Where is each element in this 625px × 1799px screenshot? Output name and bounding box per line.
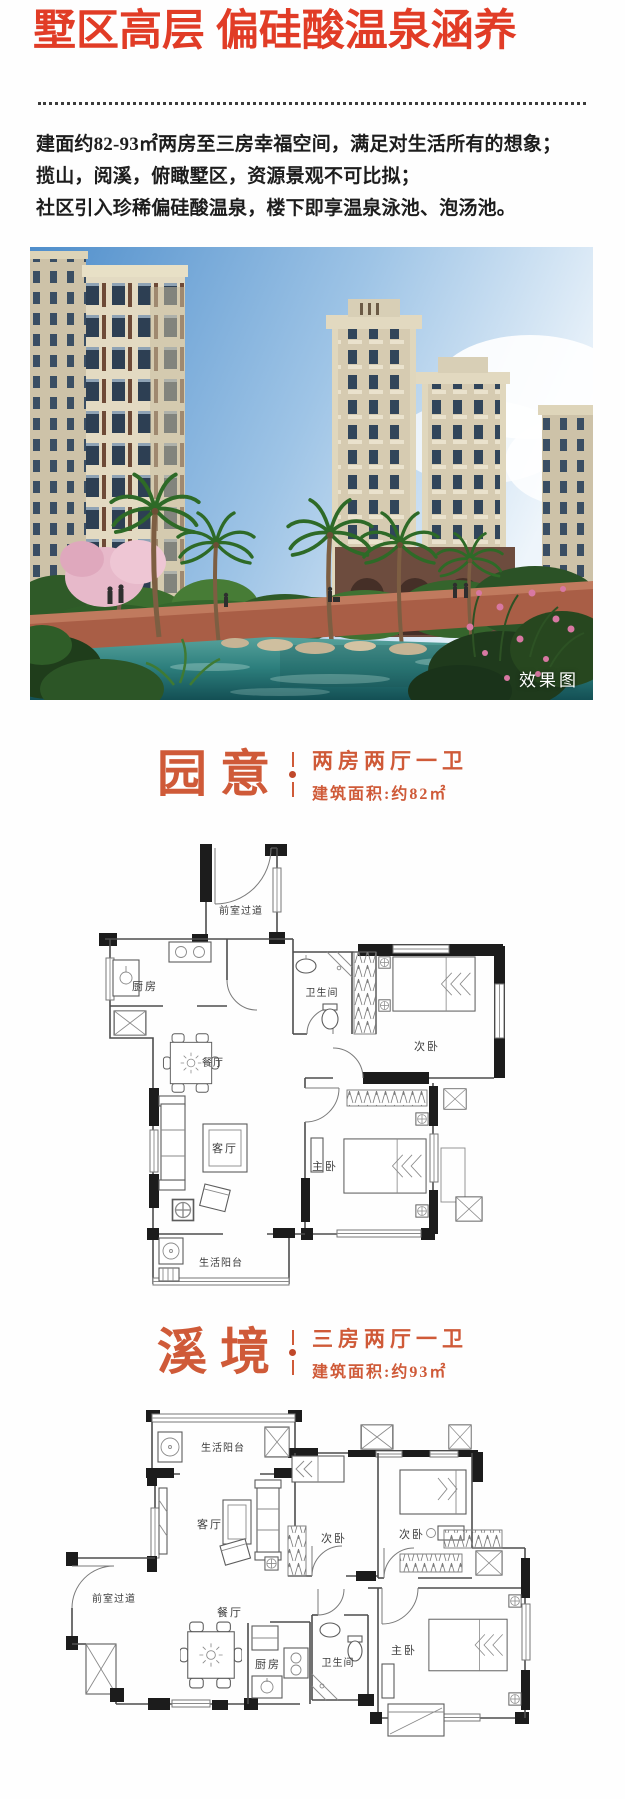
room-label-balcony: 生活阳台	[201, 1441, 245, 1454]
toilet-icon	[322, 1004, 338, 1029]
plan1-walls	[99, 844, 505, 1285]
bath-sink-icon	[296, 955, 316, 973]
room-label-master: 主卧	[312, 1160, 338, 1173]
room-label-kitchen: 厨房	[132, 980, 158, 993]
dotted-divider	[38, 102, 586, 105]
bed-icon	[292, 1456, 344, 1482]
floorplan-xijing: 生活阳台 客厅 次卧 次卧 前室过道 餐厅 厨房 卫生间 主卧	[60, 1408, 560, 1745]
room-label-living: 客厅	[212, 1141, 238, 1155]
plan1-divider	[289, 752, 296, 797]
bed-icon	[400, 1470, 466, 1514]
dining-table-icon	[180, 1622, 242, 1688]
plan1-specs: 两房两厅一卫 建筑面积:约82㎡	[312, 745, 468, 804]
room-label-dining: 餐厅	[217, 1605, 243, 1619]
wardrobe-icon	[400, 1554, 462, 1572]
plan2-layout: 三房两厅一卫	[312, 1323, 468, 1353]
intro-paragraphs: 建面约82-93㎡两房至三房幸福空间，满足对生活所有的想象； 揽山，阅溪，俯瞰墅…	[36, 129, 596, 225]
washer-icon	[159, 1238, 183, 1264]
armchair-icon	[200, 1184, 231, 1212]
plan2-specs: 三房两厅一卫 建筑面积:约93㎡	[312, 1323, 468, 1382]
intro-line-3: 社区引入珍稀偏硅酸温泉，楼下即享温泉泳池、泡汤池。	[36, 193, 596, 225]
watermark-label: 效果图	[519, 666, 579, 691]
room-label-kitchen: 厨房	[255, 1658, 281, 1671]
bath-sink-icon	[320, 1623, 340, 1637]
cabinet-icon	[159, 1268, 179, 1281]
plan2-name: 溪境	[157, 1327, 283, 1377]
room-label-corridor: 前室过道	[92, 1592, 136, 1605]
coffee-table-icon	[223, 1500, 251, 1544]
article-page: 墅区高层 偏硅酸温泉涵养 建面约82-93㎡两房至三房幸福空间，满足对生活所有的…	[0, 0, 625, 1799]
sofa-icon	[159, 1096, 185, 1190]
page-title: 墅区高层 偏硅酸温泉涵养	[33, 6, 517, 58]
wardrobe-icon	[354, 952, 376, 1034]
bed-icon	[393, 957, 475, 1011]
stove-icon	[169, 942, 211, 962]
shower-icon	[327, 952, 352, 977]
room-label-master: 主卧	[391, 1644, 417, 1657]
room-label-balcony: 生活阳台	[199, 1256, 243, 1269]
room-label-bath: 卫生间	[322, 1656, 355, 1669]
shower-icon	[312, 1674, 338, 1700]
room-label-bath: 卫生间	[306, 986, 339, 999]
intro-line-2: 揽山，阅溪，俯瞰墅区，资源景观不可比拟；	[36, 161, 596, 193]
tv-stand-icon	[173, 1200, 194, 1221]
intro-line-1: 建面约82-93㎡两房至三房幸福空间，满足对生活所有的想象；	[36, 129, 596, 161]
plan1-header: 园意 两房两厅一卫 建筑面积:约82㎡	[0, 742, 625, 806]
room-label-corridor: 前室过道	[219, 904, 263, 917]
washer-icon	[158, 1432, 182, 1462]
plan2-area: 建筑面积:约93㎡	[312, 1358, 468, 1382]
wardrobe-icon	[288, 1526, 306, 1576]
wardrobe-icon	[444, 1530, 502, 1548]
plan2-divider	[289, 1330, 296, 1375]
utility-shaft-icon	[265, 1427, 289, 1457]
bed-icon	[429, 1619, 507, 1671]
room-label-bedroom2: 次卧	[414, 1039, 440, 1053]
tv-panel-icon	[159, 1488, 167, 1554]
sofa-icon	[255, 1480, 281, 1560]
divider-dot	[289, 1349, 296, 1356]
floorplan-yuanyi: 前室过道 厨房 卫生间 次卧 餐厅 客厅 主卧 生活阳台	[75, 838, 535, 1293]
utility-shaft-icon	[114, 1011, 146, 1035]
hero-rendering-art	[30, 247, 593, 700]
plan1-area: 建筑面积:约82㎡	[312, 780, 468, 804]
room-label-dining: 餐厅	[202, 1056, 224, 1069]
room-label-bedroom2b: 次卧	[399, 1527, 425, 1541]
plant-stand-icon	[265, 1557, 278, 1570]
divider-dot	[289, 771, 296, 778]
sink-icon	[252, 1676, 282, 1698]
hero-rendering-image[interactable]: 效果图	[30, 247, 593, 700]
fridge-icon	[252, 1626, 278, 1650]
plan2-header: 溪境 三房两厅一卫 建筑面积:约93㎡	[0, 1320, 625, 1384]
room-label-living: 客厅	[197, 1517, 223, 1531]
bed-icon	[344, 1139, 426, 1193]
stove-icon	[284, 1648, 308, 1678]
plan1-name: 园意	[157, 749, 283, 799]
plan1-layout: 两房两厅一卫	[312, 745, 468, 775]
dresser-icon	[382, 1664, 394, 1698]
room-label-bedroom2a: 次卧	[321, 1531, 347, 1545]
wardrobe-icon	[347, 1090, 427, 1106]
